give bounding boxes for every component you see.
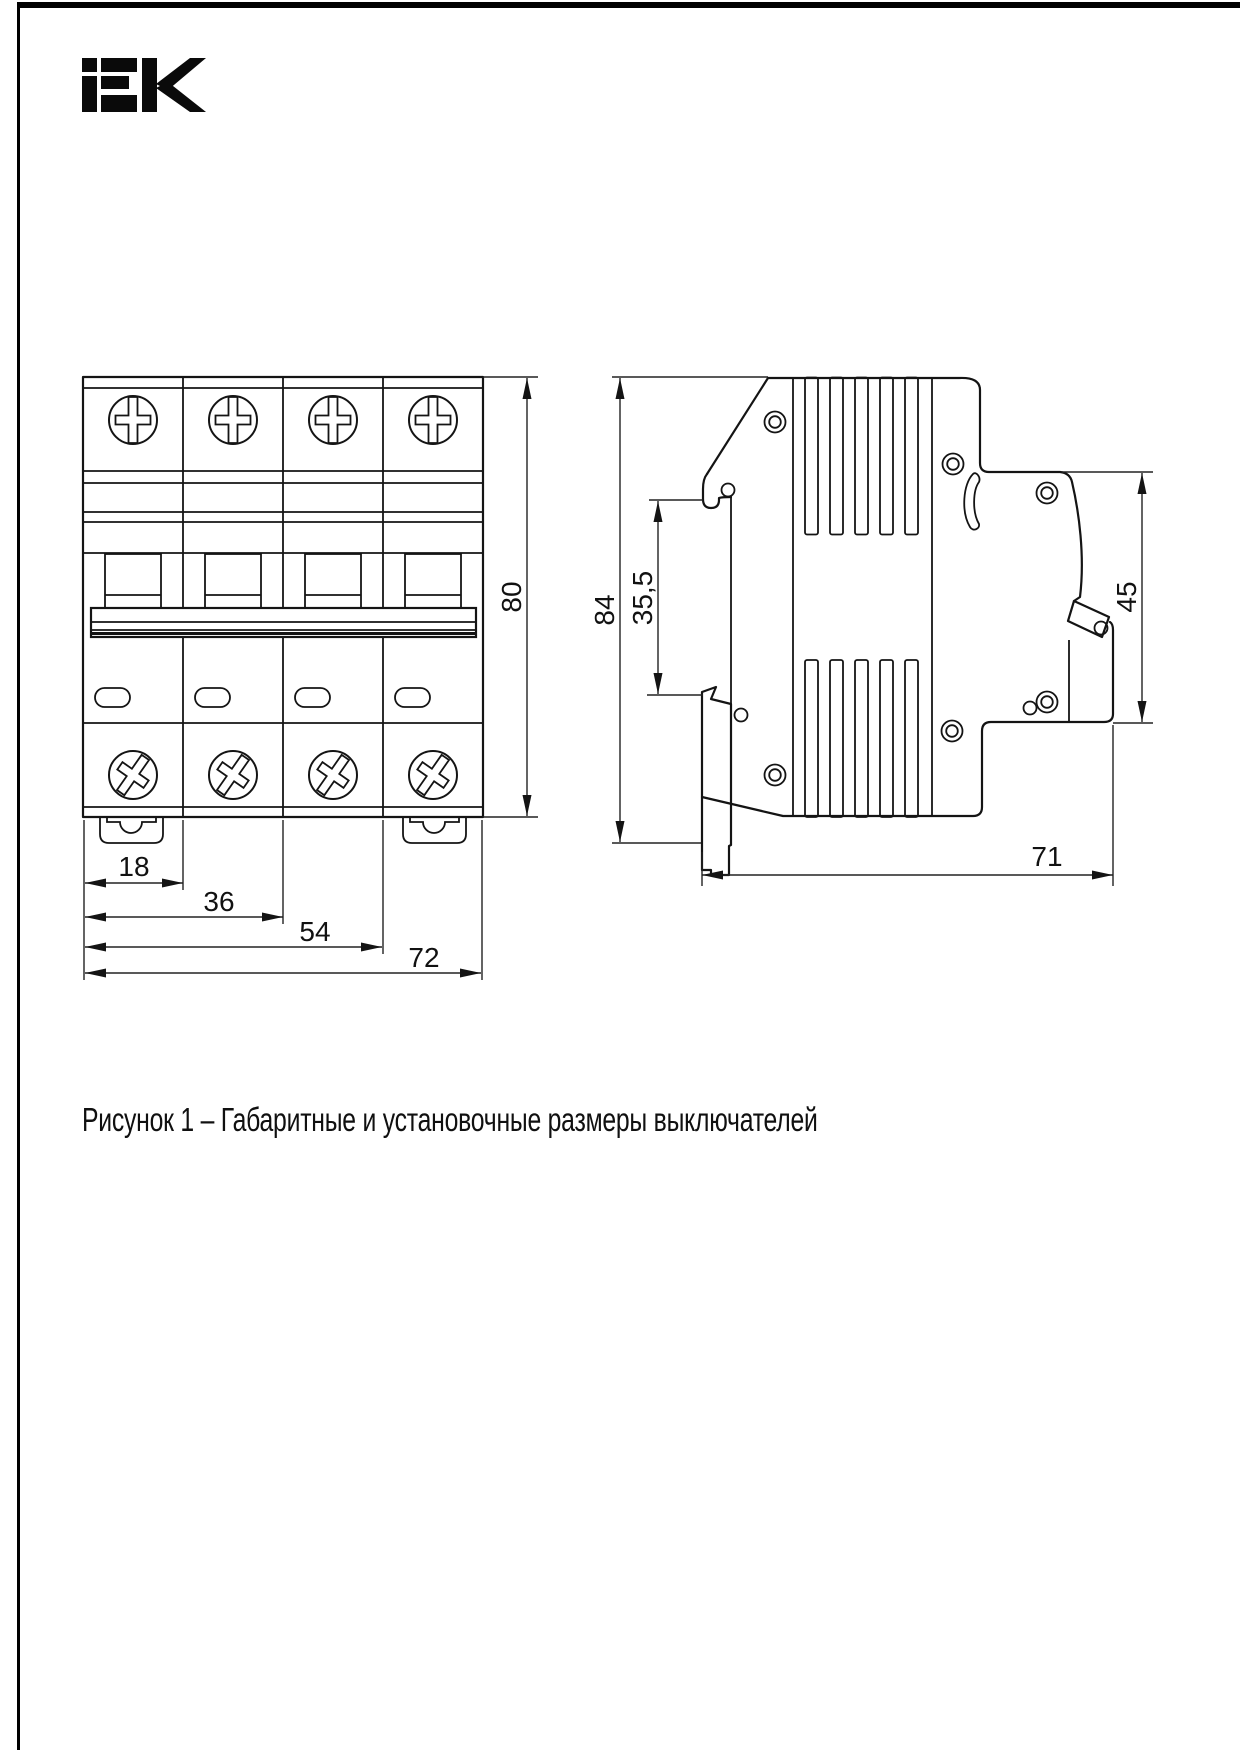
label-windows — [95, 688, 430, 707]
tie-bar — [91, 608, 476, 637]
dim-label-18: 18 — [118, 851, 149, 882]
document-page: 18 36 54 72 80 — [0, 0, 1240, 1750]
upper-rail-hook — [703, 474, 731, 508]
front-face-dimension: 45 — [1062, 472, 1153, 723]
dim-label-84: 84 — [589, 594, 620, 625]
front-width-dimensions: 18 36 54 72 — [84, 820, 482, 980]
side-slant — [707, 378, 768, 474]
toggle-lever — [1068, 601, 1109, 637]
lower-rail-clip — [702, 687, 731, 875]
depth-dimension: 71 — [702, 725, 1113, 886]
vent-slots-top — [805, 378, 918, 535]
dim-label-80: 80 — [496, 581, 527, 612]
side-height-dimension: 84 — [589, 377, 768, 843]
dim-label-36: 36 — [203, 886, 234, 917]
arc-slot — [964, 473, 979, 529]
iek-logo — [82, 58, 206, 112]
case-rivets — [765, 412, 1058, 786]
vent-slots-bottom — [805, 660, 918, 817]
front-view: 18 36 54 72 80 — [83, 377, 538, 980]
side-view: 84 35,5 45 71 — [589, 377, 1153, 886]
dim-label-71: 71 — [1031, 841, 1062, 872]
pivot-pins — [722, 484, 1037, 722]
side-outline-bottom — [702, 622, 1113, 816]
figure-caption: Рисунок 1 – Габаритные и установочные ра… — [82, 1101, 818, 1139]
rail-offset-dimension: 35,5 — [627, 500, 703, 695]
dim-label-72: 72 — [408, 942, 439, 973]
dim-label-45: 45 — [1111, 581, 1142, 612]
side-outline-top — [768, 378, 1082, 601]
dim-label-54: 54 — [299, 916, 330, 947]
technical-drawing: 18 36 54 72 80 — [0, 0, 1240, 1750]
module-dividers — [183, 377, 383, 817]
dim-label-35-5: 35,5 — [627, 571, 658, 626]
vent-panel-edges — [793, 378, 932, 816]
front-height-dimension: 80 — [483, 377, 538, 817]
